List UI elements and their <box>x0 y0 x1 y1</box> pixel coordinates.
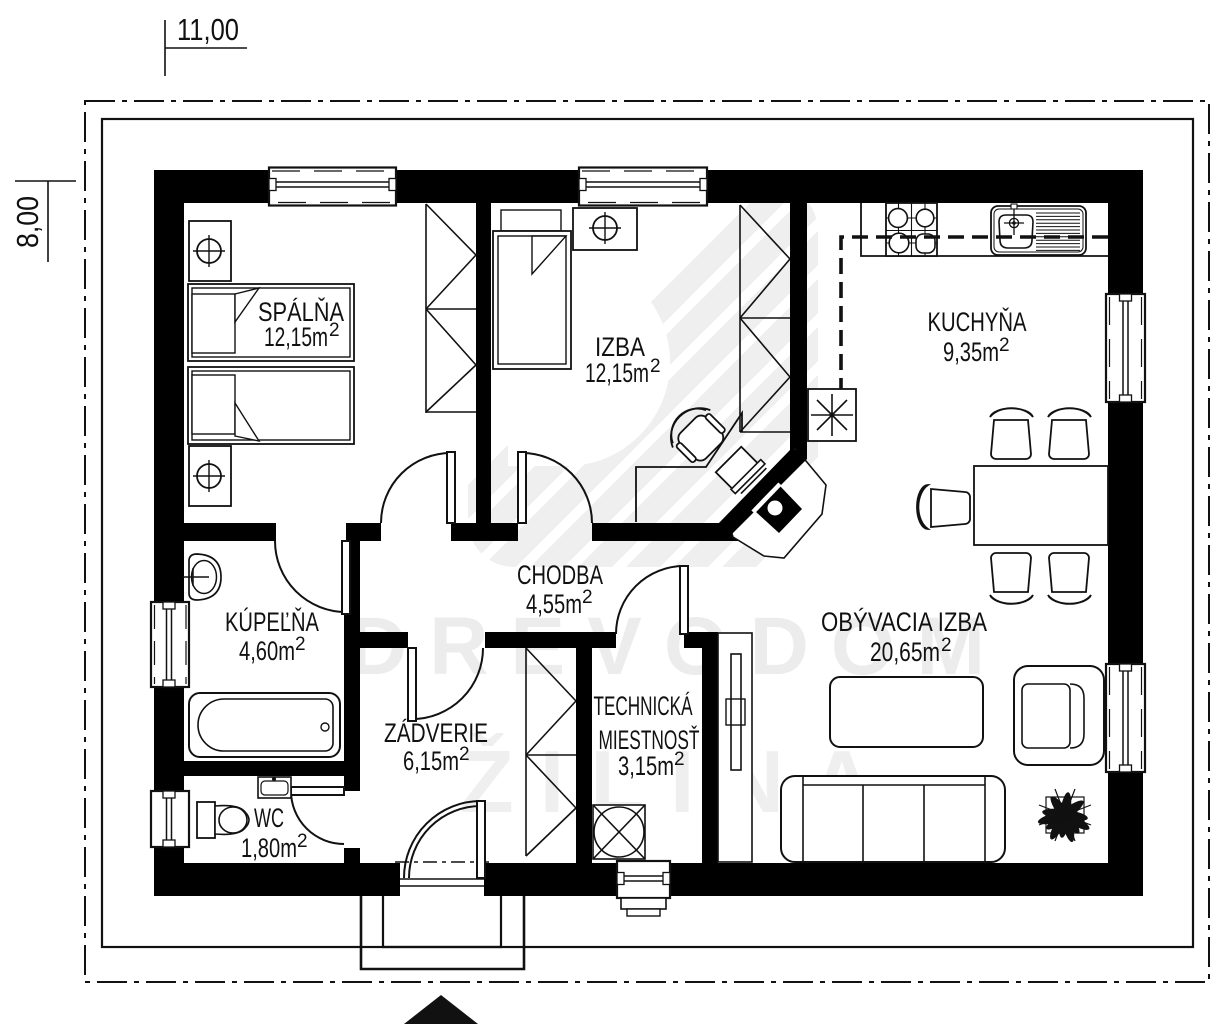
svg-text:2: 2 <box>459 744 470 765</box>
svg-text:1,80m: 1,80m <box>241 833 297 863</box>
svg-text:2: 2 <box>650 356 661 377</box>
svg-text:9,35m: 9,35m <box>943 337 999 367</box>
svg-text:2: 2 <box>297 831 308 852</box>
svg-text:12,15m: 12,15m <box>264 322 328 352</box>
svg-text:4,60m: 4,60m <box>239 636 295 666</box>
svg-text:ZÁDVERIE: ZÁDVERIE <box>384 718 488 748</box>
svg-text:4,55m: 4,55m <box>526 589 582 619</box>
svg-text:3,15m: 3,15m <box>618 751 674 781</box>
svg-text:20,65m: 20,65m <box>870 637 940 667</box>
svg-text:KÚPEĽŇA: KÚPEĽŇA <box>225 606 319 637</box>
svg-text:6,15m: 6,15m <box>403 746 459 776</box>
svg-text:OBÝVACIA IZBA: OBÝVACIA IZBA <box>821 607 987 637</box>
svg-text:2: 2 <box>329 320 340 341</box>
svg-text:12,15m: 12,15m <box>585 358 649 388</box>
svg-text:WC: WC <box>254 803 284 833</box>
svg-text:2: 2 <box>941 635 952 656</box>
svg-text:11,00: 11,00 <box>177 12 239 47</box>
svg-text:KUCHYŇA: KUCHYŇA <box>928 306 1027 337</box>
svg-text:2: 2 <box>999 335 1010 356</box>
svg-text:2: 2 <box>582 587 593 608</box>
svg-text:8,00: 8,00 <box>10 196 45 248</box>
svg-text:2: 2 <box>674 749 685 770</box>
svg-text:CHODBA: CHODBA <box>517 560 603 590</box>
svg-text:2: 2 <box>295 634 306 655</box>
svg-text:TECHNICKÁ: TECHNICKÁ <box>594 691 693 721</box>
